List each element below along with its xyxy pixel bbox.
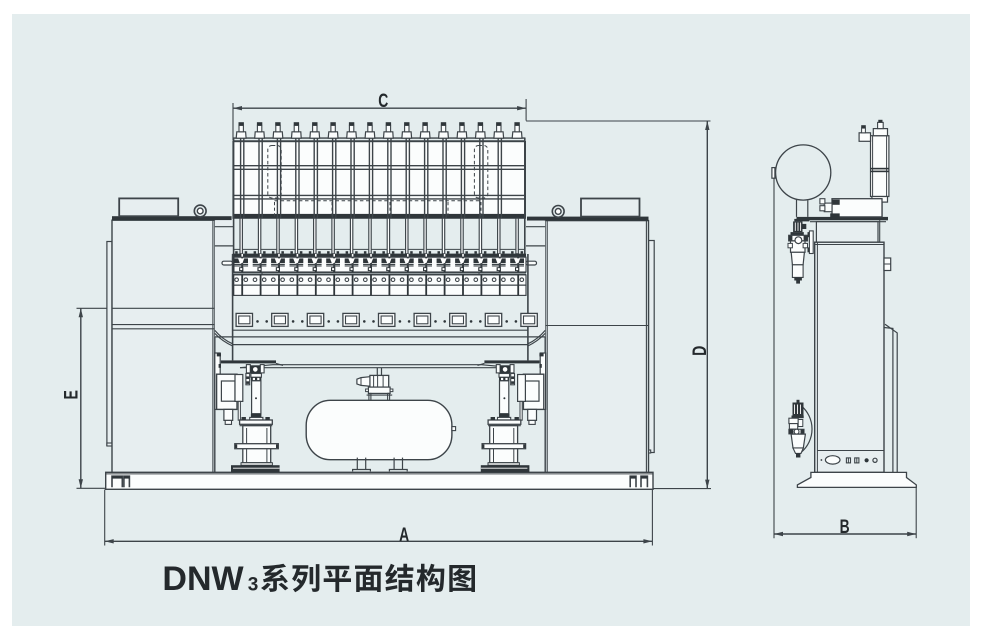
svg-text:C: C — [378, 90, 388, 112]
svg-text:E: E — [60, 390, 82, 399]
svg-text:3: 3 — [248, 575, 259, 596]
svg-text:DNW: DNW — [162, 560, 244, 598]
svg-text:D: D — [689, 346, 711, 356]
svg-text:B: B — [840, 516, 850, 538]
svg-text:A: A — [399, 524, 409, 546]
